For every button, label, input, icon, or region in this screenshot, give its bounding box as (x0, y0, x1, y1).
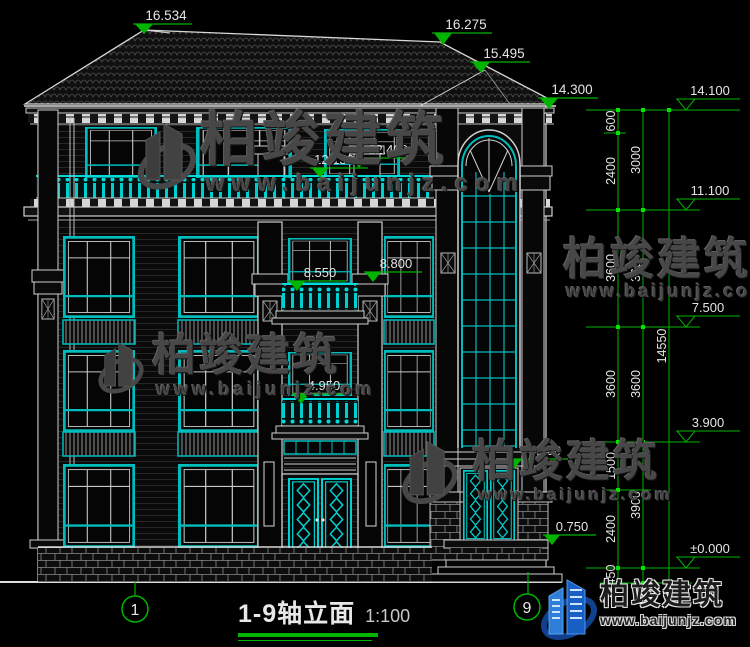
axis-bubble-1-text: 1 (131, 602, 140, 619)
marker-7500-text: 7.500 (692, 300, 725, 315)
dim-3600-d: 3600 (629, 370, 643, 398)
label-15495-text: 15.495 (483, 46, 524, 61)
dim-3600-b: 3600 (604, 370, 618, 398)
axis-bubble-1: 1 (122, 582, 148, 622)
watermark-center-brand: 柏竣建筑 (472, 440, 660, 484)
brand-logo (541, 576, 601, 647)
drawing-title-block: 1-9轴立面1:100 (238, 594, 410, 641)
marker-11100-text: 11.100 (691, 183, 730, 198)
label-14300-text: 14.300 (551, 82, 592, 97)
title-underline (238, 633, 378, 637)
title-underline-thin (238, 640, 372, 641)
stone-plinth (38, 547, 432, 582)
drawing-scale: 1:100 (365, 606, 410, 626)
label-16275-text: 16.275 (445, 17, 486, 32)
dim-2400-a: 2400 (604, 157, 618, 185)
watermark-top (136, 118, 198, 198)
label-0750: 0.750 (543, 519, 596, 545)
cad-elevation-screenshot: 600 2400 3600 3600 1500 2400 450 3000 36… (0, 0, 750, 647)
axis-bubble-9-text: 9 (523, 600, 532, 617)
dim-600: 600 (604, 111, 618, 132)
marker-3900: 3.900 (676, 415, 740, 442)
marker-14100-text: 14.100 (690, 83, 730, 98)
watermark-logo-icon (95, 338, 147, 400)
brand-logo-name: 柏竣建筑 (600, 580, 737, 612)
brand-logo-site: www.baijunjz.com (600, 612, 737, 628)
watermark-center-site: www.baijunjz.com (478, 486, 673, 503)
watermark-right-site: www.baijunjz.com (566, 282, 750, 300)
roof (25, 30, 547, 106)
label-0750-text: 0.750 (556, 519, 589, 534)
elevation-drawing: 600 2400 3600 3600 1500 2400 450 3000 36… (0, 0, 750, 647)
label-16275: 16.275 (432, 17, 492, 45)
marker-3900-text: 3.900 (692, 415, 725, 430)
watermark-left (95, 338, 147, 404)
dim-2400-b: 2400 (604, 515, 618, 543)
watermark-center (398, 436, 462, 516)
label-15495: 15.495 (470, 46, 530, 73)
watermark-right-brand: 柏竣建筑 (563, 238, 750, 282)
watermark-left-brand: 柏竣建筑 (152, 334, 340, 378)
marker-0000: ±0.000 (676, 541, 740, 568)
brand-logo-icon (541, 576, 601, 644)
marker-0000-text: ±0.000 (690, 541, 730, 556)
drawing-title: 1-9轴立面 (238, 600, 355, 628)
dim-3000: 3000 (629, 146, 643, 174)
brand-logo-textblock: 柏竣建筑 www.baijunjz.com (600, 580, 737, 628)
dim-total-14550: 14550 (655, 329, 669, 364)
dimension-text-inner-chain: 600 2400 3600 3600 1500 2400 450 (604, 111, 618, 586)
watermark-top-brand: 柏竣建筑 (200, 112, 448, 170)
watermark-logo-icon (398, 436, 462, 512)
watermark-left-site: www.baijunjz.com (156, 380, 375, 398)
marker-7500: 7.500 (676, 300, 740, 327)
label-16534-text: 16.534 (145, 8, 187, 23)
marker-14100: 14.100 (676, 83, 740, 110)
watermark-top-site: www.baijunjz.com (206, 172, 525, 196)
label-8550-text: 8.550 (304, 265, 337, 280)
label-14300: 14.300 (538, 82, 598, 109)
label-8800-text: 8.800 (380, 256, 413, 271)
marker-11100: 11.100 (676, 183, 740, 210)
level-markers: 14.100 11.100 7.500 3.900 ±0.000 (676, 83, 740, 568)
watermark-logo-icon (136, 118, 198, 198)
